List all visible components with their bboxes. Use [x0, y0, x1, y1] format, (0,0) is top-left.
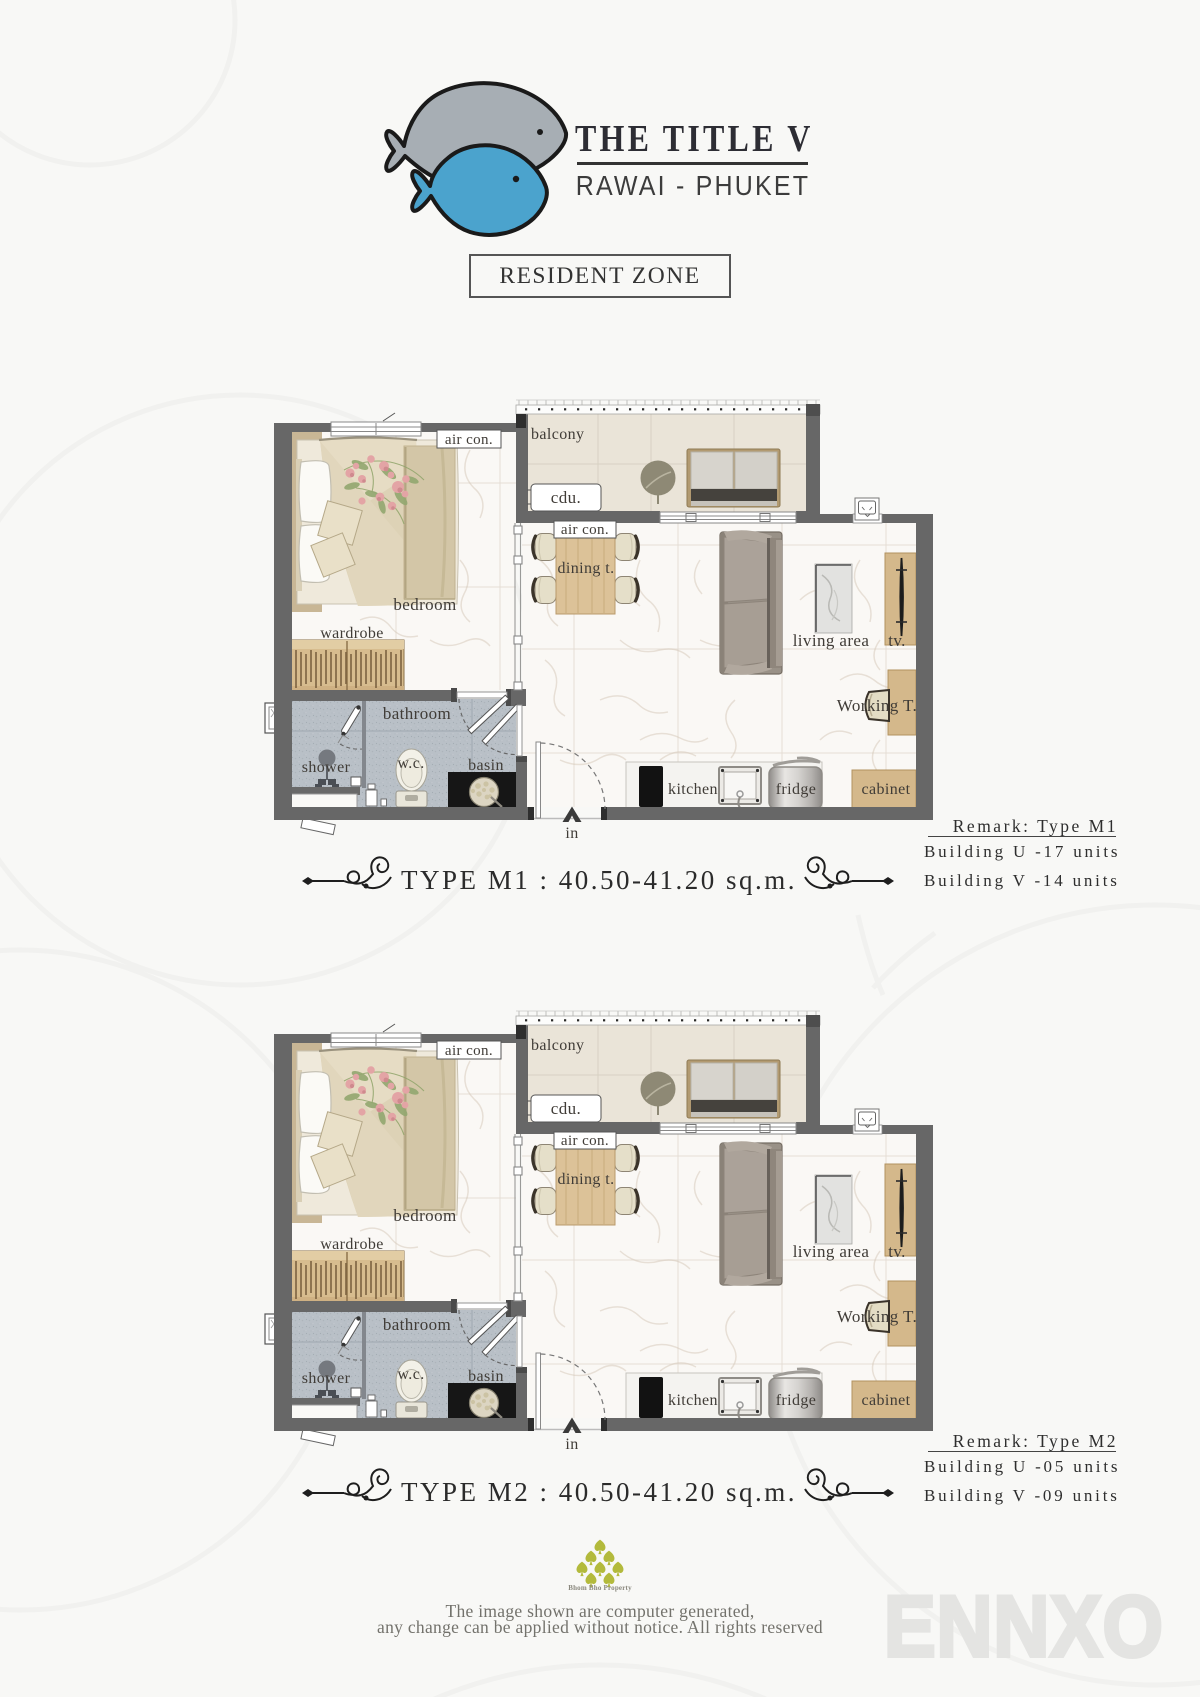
svg-text:tv.: tv.: [888, 1242, 906, 1261]
svg-text:in: in: [565, 1436, 578, 1453]
svg-text:living area: living area: [793, 1242, 870, 1261]
svg-text:bathroom: bathroom: [383, 1315, 451, 1334]
svg-text:air con.: air con.: [445, 432, 493, 448]
svg-text:balcony: balcony: [531, 1037, 584, 1054]
svg-text:air con.: air con.: [561, 522, 609, 538]
svg-text:cdu.: cdu.: [551, 488, 581, 507]
svg-text:basin: basin: [468, 1368, 504, 1385]
svg-text:fridge: fridge: [776, 1392, 817, 1409]
svg-text:wardrobe: wardrobe: [320, 1236, 384, 1253]
svg-text:dining t.: dining t.: [558, 560, 615, 577]
svg-text:balcony: balcony: [531, 426, 584, 443]
svg-text:bedroom: bedroom: [393, 1206, 456, 1225]
svg-text:w.c.: w.c.: [397, 1366, 424, 1383]
svg-text:air con.: air con.: [561, 1133, 609, 1149]
svg-text:cdu.: cdu.: [551, 1099, 581, 1118]
svg-text:air con.: air con.: [445, 1043, 493, 1059]
svg-text:cabinet: cabinet: [862, 1392, 911, 1409]
svg-text:Working T.: Working T.: [837, 1307, 917, 1326]
svg-text:dining t.: dining t.: [558, 1171, 615, 1188]
svg-text:shower: shower: [302, 1370, 351, 1387]
svg-text:kitchen: kitchen: [668, 1392, 718, 1409]
